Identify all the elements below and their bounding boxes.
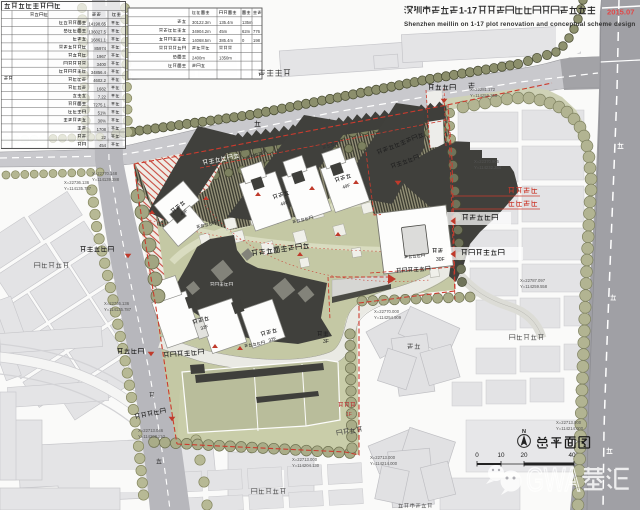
svg-text:3400: 3400 [97,62,107,67]
svg-text:1708: 1708 [97,127,107,132]
svg-text:1F: 1F [346,412,352,418]
svg-text:GWA: GWA [526,461,580,498]
svg-text:X=22713.000: X=22713.000 [556,420,582,425]
svg-text:4602.2: 4602.2 [93,78,106,83]
svg-text:30F: 30F [436,257,445,263]
svg-text:10: 10 [497,452,505,459]
svg-text:51%: 51% [98,111,107,116]
svg-text:30122.3m: 30122.3m [192,20,211,25]
svg-text:X=22713.000: X=22713.000 [370,455,396,460]
svg-text:3F: 3F [323,339,329,345]
svg-text:X=22736.136: X=22736.136 [104,301,130,306]
svg-text:16861.1: 16861.1 [91,38,107,43]
svg-text:Y=114259.266: Y=114259.266 [470,93,498,98]
svg-text:Shenzhen meillin on 1-17 plot: Shenzhen meillin on 1-17 plot renovation… [404,21,635,28]
svg-text:1350m: 1350m [219,55,232,60]
svg-text:198: 198 [253,38,261,43]
svg-text:X=22770.000: X=22770.000 [374,309,400,314]
svg-text:0: 0 [475,452,479,459]
svg-text:Y=114214.000: Y=114214.000 [556,426,584,431]
svg-text:34904.2m: 34904.2m [192,29,211,34]
svg-text:85974: 85974 [94,46,106,51]
svg-text:40: 40 [568,452,576,459]
svg-text:14198.65: 14198.65 [89,22,107,27]
svg-text:Y=114204.130: Y=114204.130 [292,463,320,468]
svg-text:7.22: 7.22 [98,94,107,99]
svg-text:34856.4: 34856.4 [91,70,107,75]
svg-text:1967: 1967 [97,54,107,59]
svg-text:X=22281.172: X=22281.172 [470,87,496,92]
svg-text:1-17: 1-17 [459,6,477,16]
svg-text:X=22787.097: X=22787.097 [520,278,546,283]
svg-text:Y=114259.558: Y=114259.558 [520,284,548,289]
svg-text:776: 776 [253,29,261,34]
svg-text:2400m: 2400m [192,55,205,60]
svg-text:135m: 135m [242,20,253,25]
svg-text:X=22713.000: X=22713.000 [292,457,318,462]
svg-text:30%: 30% [98,119,107,124]
svg-text:Y=114214.000: Y=114214.000 [370,461,398,466]
svg-text:Y=114139.288: Y=114139.288 [92,177,120,182]
svg-text:Y=114208.252: Y=114208.252 [138,434,166,439]
svg-text:20: 20 [520,452,528,459]
svg-text:Y=114135.787: Y=114135.787 [64,186,92,191]
svg-text:136027.5: 136027.5 [89,30,107,35]
svg-text:454: 454 [99,143,107,148]
svg-text:N: N [522,429,526,435]
svg-text:1682: 1682 [97,86,107,91]
svg-text:Y=114254.909: Y=114254.909 [374,315,402,320]
svg-text:7275.1: 7275.1 [93,103,106,108]
svg-text:385.4m: 385.4m [219,38,233,43]
svg-text:22: 22 [101,135,106,140]
svg-text:Y=114232.284: Y=114232.284 [474,165,502,170]
svg-text:X=22713.046: X=22713.046 [138,428,164,433]
svg-text:Y=114135.787: Y=114135.787 [104,307,132,312]
svg-text:135.4m: 135.4m [219,20,233,25]
svg-text:X=22770.148: X=22770.148 [92,171,118,176]
svg-text:2015.07: 2015.07 [607,8,634,17]
svg-text:45m: 45m [219,29,228,34]
svg-text:X=22736.136: X=22736.136 [64,180,90,185]
svg-text:14068.5m: 14068.5m [192,38,211,43]
svg-text:62m: 62m [242,29,251,34]
svg-text:X=22370.905: X=22370.905 [474,159,500,164]
